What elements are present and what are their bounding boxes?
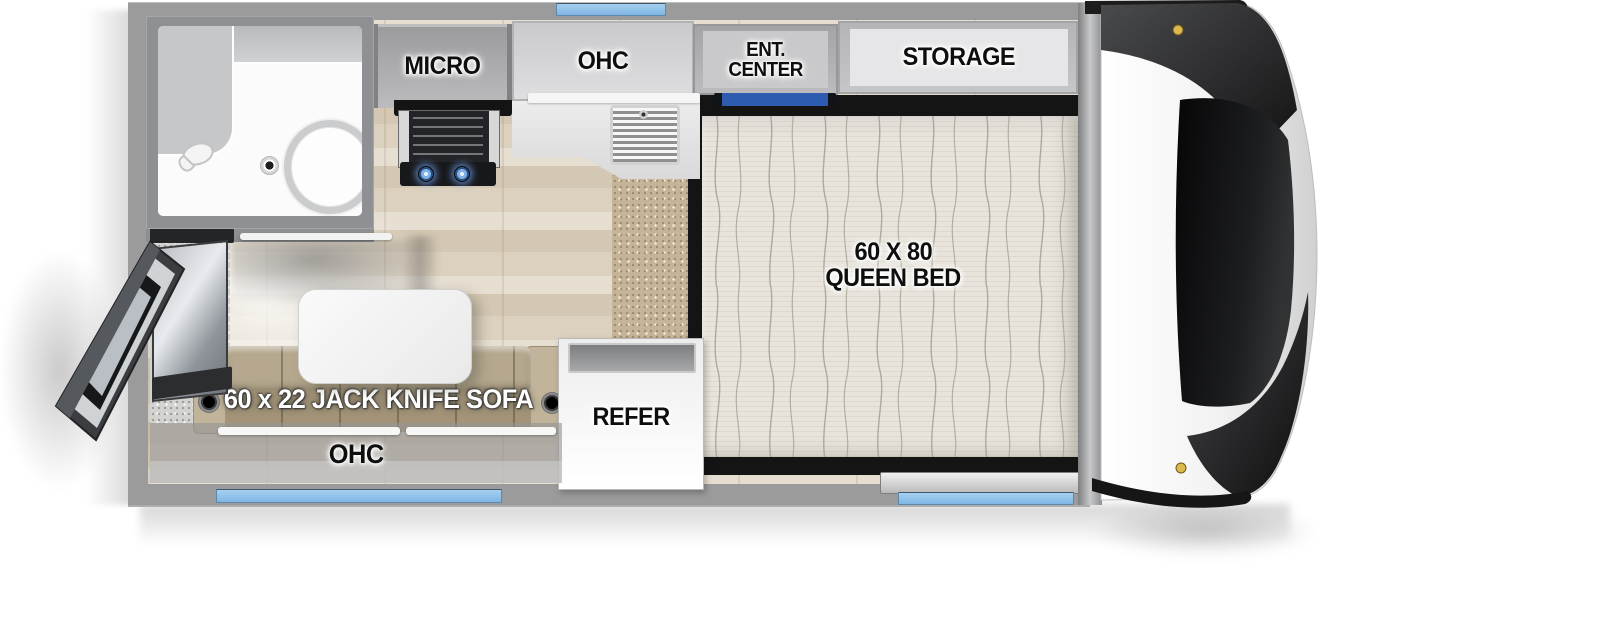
- entertainment-center: ENT. CENTER: [693, 24, 838, 95]
- overhead-cabinet-kitchen: OHC: [512, 21, 694, 101]
- ohc-sofa-label: OHC: [150, 439, 562, 470]
- bed-type-text: QUEEN BED: [826, 265, 961, 291]
- window-strip-bottom-left: [216, 489, 502, 503]
- burner-panel: [400, 162, 496, 186]
- bed-size-text: 60 X 80: [855, 239, 933, 265]
- burner-icon: [418, 166, 434, 182]
- micro-label: MICRO: [405, 52, 481, 81]
- cabinet-door-strip: [218, 427, 400, 435]
- front-wall: [1078, 3, 1102, 505]
- sink-grate-icon: [610, 105, 680, 165]
- cabinet-edge-strip: [240, 233, 392, 240]
- two-burner-cooktop-icon: [398, 110, 500, 168]
- ent-center-panel: ENT. CENTER: [703, 31, 828, 88]
- front-window: [1176, 98, 1294, 407]
- sink-drain-dot: [639, 110, 648, 119]
- window-strip-bottom-right: [898, 492, 1074, 505]
- storage-label: STORAGE: [903, 43, 1015, 72]
- storage-cabinet: STORAGE: [838, 21, 1078, 94]
- toilet-icon: [284, 120, 362, 214]
- tv-strip: [714, 93, 836, 106]
- drain-icon: [260, 156, 279, 175]
- bed-storage-drawer: [880, 472, 1090, 494]
- storage-panel: STORAGE: [850, 29, 1068, 86]
- refrigerator: REFER: [558, 338, 704, 490]
- shower-head-icon: [172, 134, 220, 182]
- truck-camper-front-cap: [1060, 0, 1335, 545]
- burner-icon: [454, 166, 470, 182]
- bathroom-floor: [158, 26, 362, 216]
- sofa-label: 60 x 22 JACK KNIFE SOFA: [179, 384, 579, 415]
- ohc-kitchen-label: OHC: [578, 47, 629, 76]
- open-entry-door-icon: [35, 225, 205, 450]
- counter-edge: [528, 93, 700, 103]
- refrigerator-lid: [568, 343, 696, 373]
- microwave-cabinet: MICRO: [373, 24, 512, 108]
- bathroom: [146, 16, 374, 229]
- clearance-light-icon: [1176, 463, 1186, 473]
- bed-label: 60 X 80 QUEEN BED: [702, 239, 1085, 292]
- ent-center-label: ENT. CENTER: [728, 40, 802, 80]
- oven-rack: [413, 117, 483, 161]
- window-strip-top: [556, 3, 666, 16]
- clearance-light-icon: [1173, 25, 1183, 35]
- queen-bed: 60 X 80 QUEEN BED: [702, 116, 1085, 457]
- cabinet-door-strip: [406, 427, 556, 435]
- overhead-cabinet-sofa: OHC: [150, 423, 562, 483]
- refer-label: REFER: [559, 403, 703, 432]
- floorplan-scene: 60 X 80 QUEEN BED MICRO: [0, 0, 1600, 624]
- dinette-table: [298, 289, 472, 384]
